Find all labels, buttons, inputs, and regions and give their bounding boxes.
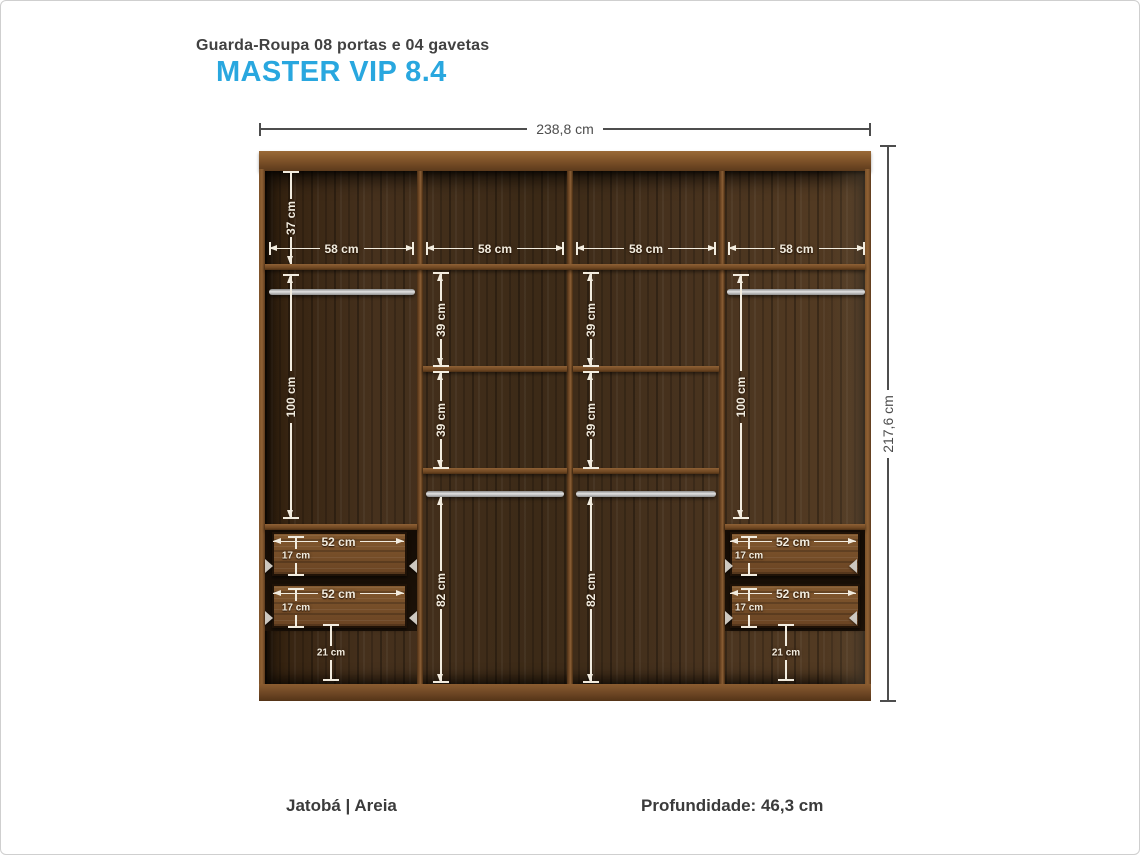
wardrobe-diagram: [259, 151, 871, 701]
drawer-slide-icon: [725, 611, 733, 625]
dimension-label: 37 cm: [284, 201, 298, 235]
drawer-slide-icon: [265, 611, 273, 625]
dimension-column2-width: 58 cm: [426, 242, 564, 255]
drawer-slide-icon: [849, 559, 857, 573]
dimension-label: 58 cm: [629, 242, 663, 256]
product-type-label: Guarda-Roupa 08 portas e 04 gavetas: [196, 37, 489, 55]
dimension-label: 217,6 cm: [880, 395, 896, 453]
dimension-label: 17 cm: [282, 603, 310, 614]
dimension-label: 238,8 cm: [536, 121, 594, 137]
model-name-title: MASTER VIP 8.4: [216, 56, 447, 89]
dimension-below-rod-col2: 82 cm: [434, 497, 448, 682]
drawer-slide-icon: [265, 559, 273, 573]
dimension-label: 39 cm: [434, 302, 448, 336]
dimension-label: 52 cm: [776, 587, 810, 601]
dimension-label: 100 cm: [734, 376, 748, 417]
product-diagram-card: Guarda-Roupa 08 portas e 04 gavetas MAST…: [0, 0, 1140, 855]
drawer-slide-icon: [409, 611, 417, 625]
dimension-column1-width: 58 cm: [269, 242, 414, 255]
dimension-label: 39 cm: [584, 403, 598, 437]
divider-2: [567, 171, 573, 684]
dimension-label: 100 cm: [284, 376, 298, 417]
top-shelf: [265, 264, 865, 270]
drawer-slide-icon: [849, 611, 857, 625]
dimension-label: 52 cm: [776, 535, 810, 549]
dimension-label: 82 cm: [434, 572, 448, 606]
dimension-shelf-gap-col2-upper: 39 cm: [434, 273, 448, 366]
dimension-label: 21 cm: [317, 647, 345, 658]
wardrobe-bottom-panel: [259, 684, 871, 701]
dimension-total-height: 217,6 cm: [881, 146, 895, 701]
dimension-below-drawers-left: 21 cm: [324, 625, 338, 680]
dimension-drawer-right1-height: 17 cm: [742, 537, 756, 575]
dimension-label: 58 cm: [324, 242, 358, 256]
dimension-total-width: 238,8 cm: [259, 122, 871, 136]
dimension-label: 52 cm: [321, 587, 355, 601]
dimension-drawer-left1-height: 17 cm: [289, 537, 303, 575]
finish-colors-label: Jatobá | Areia: [286, 796, 397, 816]
dimension-label: 82 cm: [584, 572, 598, 606]
drawer-slide-icon: [725, 559, 733, 573]
dimension-drawer-left2-height: 17 cm: [289, 589, 303, 627]
dimension-column3-width: 58 cm: [576, 242, 716, 255]
dimension-hanging-left: 100 cm: [284, 275, 298, 518]
dimension-hanging-right: 100 cm: [734, 275, 748, 518]
depth-label: Profundidade: 46,3 cm: [641, 796, 823, 816]
dimension-below-rod-col3: 82 cm: [584, 497, 598, 682]
dimension-label: 39 cm: [434, 403, 448, 437]
dimension-label: 17 cm: [735, 603, 763, 614]
dimension-column4-width: 58 cm: [728, 242, 865, 255]
dimension-label: 52 cm: [321, 535, 355, 549]
dimension-shelf-gap-col3-upper: 39 cm: [584, 273, 598, 366]
dimension-shelf-gap-col2-lower: 39 cm: [434, 372, 448, 468]
dimension-below-drawers-right: 21 cm: [779, 625, 793, 680]
drawer-slide-icon: [409, 559, 417, 573]
dimension-drawer-right2-height: 17 cm: [742, 589, 756, 627]
wardrobe-right-panel: [865, 169, 871, 686]
dimension-label: 58 cm: [779, 242, 813, 256]
divider-1: [417, 171, 423, 684]
dimension-label: 17 cm: [735, 551, 763, 562]
dimension-label: 58 cm: [478, 242, 512, 256]
dimension-shelf-gap-col3-lower: 39 cm: [584, 372, 598, 468]
dimension-label: 39 cm: [584, 302, 598, 336]
dimension-label: 17 cm: [282, 551, 310, 562]
dimension-label: 21 cm: [772, 647, 800, 658]
wardrobe-top-panel: [259, 151, 871, 171]
